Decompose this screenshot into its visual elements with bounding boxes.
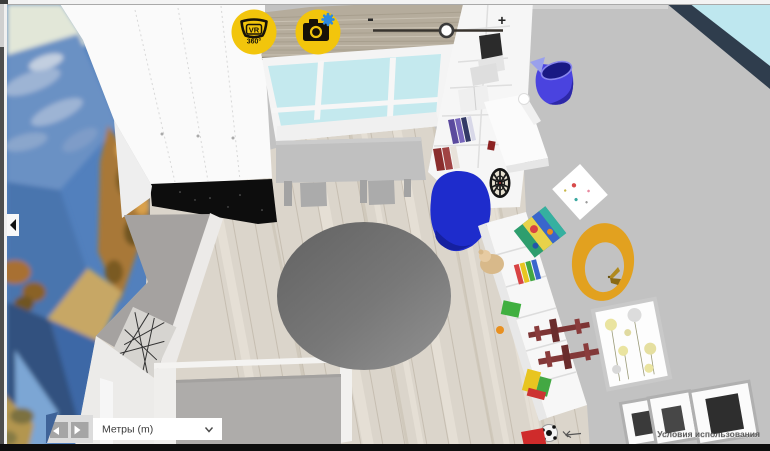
svg-text:Условия использования: Условия использования (657, 429, 760, 439)
svg-text:VR: VR (249, 26, 260, 35)
svg-text:360°: 360° (247, 38, 262, 46)
svg-text:+: + (498, 12, 506, 28)
svg-text:Метры (m): Метры (m) (102, 424, 153, 436)
